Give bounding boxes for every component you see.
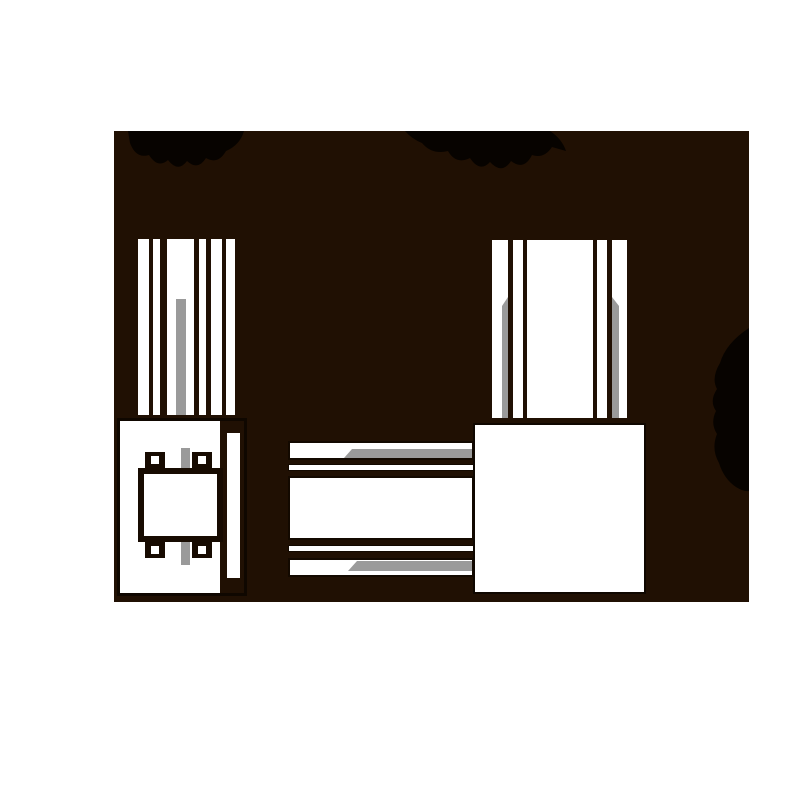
top-view-gray-band	[344, 449, 472, 458]
rail-clip-slot	[227, 433, 240, 578]
top-view-thin-strip	[288, 464, 474, 471]
page: { "canvas": { "width": 800, "height": 80…	[0, 0, 800, 800]
terminal-bump	[145, 452, 165, 468]
fin-bar	[226, 239, 235, 415]
terminal-block-body	[138, 468, 223, 542]
fin-bar	[527, 240, 593, 418]
fin-gray-slot	[502, 297, 508, 418]
top-view-gray-band	[348, 561, 472, 571]
top-view-outer-bar-bottom	[288, 558, 474, 577]
front-view-body-box	[473, 423, 646, 594]
fin-bar	[513, 240, 523, 418]
fin-gray-slot	[612, 297, 619, 418]
top-view-thin-strip	[288, 545, 474, 552]
fin-bar	[138, 239, 149, 415]
terminal-bump-hole	[151, 546, 159, 554]
top-left-illegible-label	[128, 131, 244, 167]
fin-gray-slot	[176, 299, 186, 415]
terminal-bump	[145, 542, 165, 558]
terminal-block-face	[144, 474, 217, 536]
side-view-body-box	[117, 418, 247, 596]
fin-bar	[597, 240, 607, 418]
terminal-bump-hole	[151, 456, 159, 464]
product-silhouette-panel	[114, 131, 749, 602]
top-view-outer-bar-top	[288, 441, 474, 460]
terminal-bump-hole	[198, 546, 206, 554]
top-right-illegible-label	[405, 131, 566, 168]
right-edge-blot	[713, 328, 749, 491]
terminal-bump	[192, 542, 212, 558]
fin-bar	[211, 239, 222, 415]
fin-bar	[199, 239, 206, 415]
fin-bar	[153, 239, 160, 415]
top-view-main-slab	[288, 476, 474, 540]
terminal-bump	[192, 452, 212, 468]
terminal-bump-hole	[198, 456, 206, 464]
